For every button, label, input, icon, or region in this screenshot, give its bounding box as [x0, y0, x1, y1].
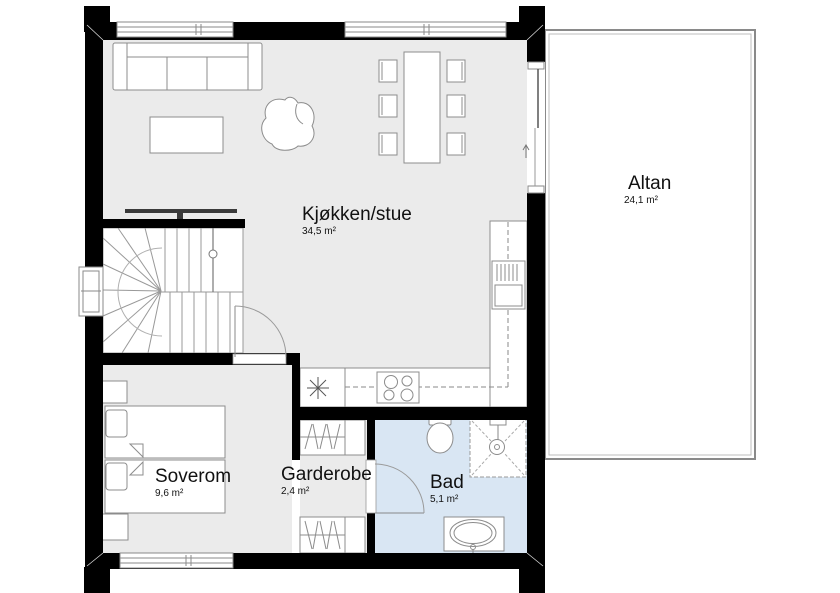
sofa [113, 43, 262, 90]
closet-bottom [300, 517, 365, 553]
corner-post-bottom-right [519, 567, 545, 593]
window-stair-left [79, 267, 103, 316]
plant-icon [262, 97, 314, 150]
closet-top [300, 420, 365, 455]
room-name-altan: Altan [628, 173, 671, 194]
nightstand-bottom [101, 514, 128, 540]
wall-stair-top [103, 219, 245, 228]
cooktop [377, 372, 419, 403]
dining-chairs-right [447, 60, 465, 155]
room-name-garderobe: Garderobe [281, 464, 372, 485]
window-soverom-bottom [120, 553, 233, 568]
room-label-garderobe: Garderobe 2,4 m² [281, 464, 372, 498]
room-area-garderobe: 2,4 m² [281, 486, 372, 498]
corner-post-top-left [84, 6, 110, 32]
dining-table [404, 52, 440, 163]
floor-plan-drawing [0, 0, 840, 593]
window-dining-top [345, 22, 506, 37]
room-soverom-floor [103, 365, 292, 553]
room-label-kjokken-stue: Kjøkken/stue 34,5 m² [302, 204, 412, 238]
pillow-1 [106, 410, 127, 437]
floor-plan: Kjøkken/stue 34,5 m² Altan 24,1 m² Sover… [0, 0, 840, 593]
room-label-bad: Bad 5,1 m² [430, 472, 464, 506]
room-name-kjokken-stue: Kjøkken/stue [302, 204, 412, 225]
shower [470, 418, 526, 477]
room-area-bad: 5,1 m² [430, 494, 464, 506]
room-label-altan: Altan 24,1 m² [624, 173, 671, 207]
room-label-soverom: Soverom 9,6 m² [155, 466, 231, 500]
wall-soverom-right [292, 353, 300, 460]
room-area-soverom: 9,6 m² [155, 488, 231, 500]
oven-appliance [492, 261, 525, 309]
corner-post-top-right [519, 6, 545, 32]
coffee-table [150, 117, 223, 153]
wall-kitchen-bottom [292, 407, 545, 420]
dining-chairs-left [379, 60, 397, 155]
nightstand-top [101, 381, 127, 403]
vanity-sink [444, 517, 504, 554]
pillow-2 [106, 463, 127, 490]
corner-post-bottom-left [84, 567, 110, 593]
toilet [427, 416, 453, 453]
room-altan-deck [545, 30, 755, 459]
room-area-altan: 24,1 m² [624, 195, 671, 207]
dining-set [379, 52, 465, 163]
stair-newel-post [209, 250, 217, 258]
room-name-soverom: Soverom [155, 466, 231, 487]
room-name-bad: Bad [430, 472, 464, 493]
sink-asterisk-icon [307, 377, 329, 399]
window-living-top [117, 22, 233, 37]
room-area-kjokken-stue: 34,5 m² [302, 226, 412, 238]
